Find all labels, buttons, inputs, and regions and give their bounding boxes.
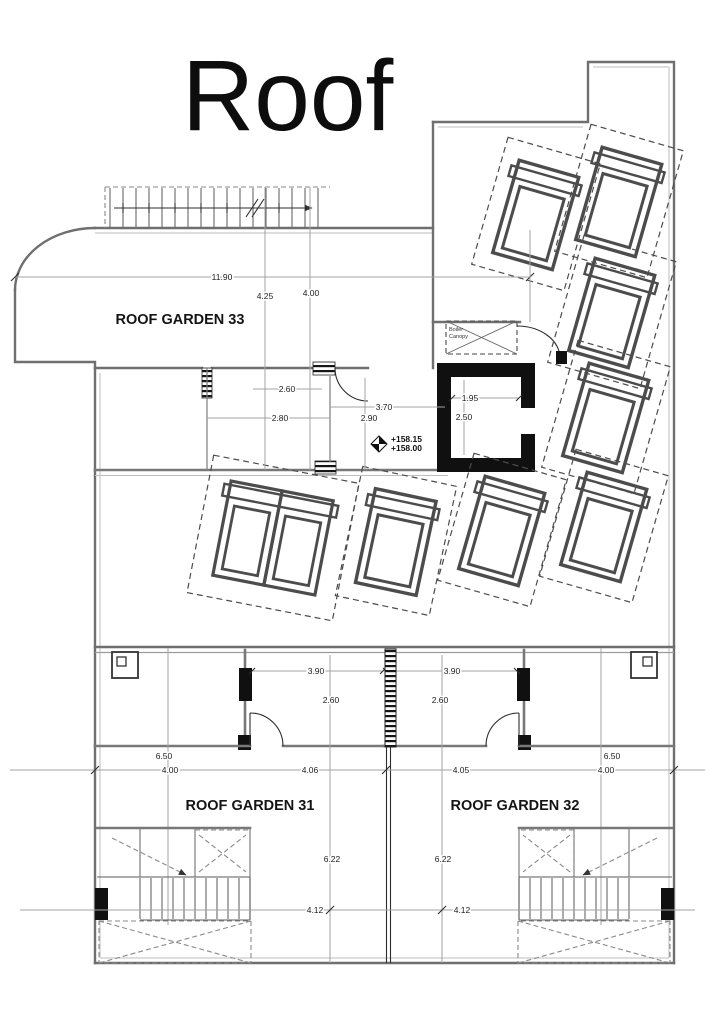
dim-406: 4.06 — [302, 765, 319, 775]
floor-plan-canvas: Roof Boiler Canopy — [0, 0, 709, 1024]
room-label-garden33: ROOF GARDEN 33 — [116, 312, 245, 328]
dim-vest-d-left: 2.60 — [323, 695, 340, 705]
dim-corr-370: 3.70 — [376, 402, 393, 412]
dim-room-260: 2.60 — [279, 384, 296, 394]
floor-plan-page: Roof Boiler Canopy — [0, 0, 709, 1024]
level-lower: +158.00 — [391, 443, 422, 453]
dim-lift-width: 1.95 — [462, 393, 479, 403]
dim-405: 4.05 — [453, 765, 470, 775]
dim-vest-d-right: 2.60 — [432, 695, 449, 705]
skylight-panel — [548, 235, 677, 388]
boiler-canopy: Boiler Canopy — [433, 321, 567, 364]
elevator-shaft: 1.95 2.50 — [437, 363, 535, 472]
dim-650-right: 6.50 — [604, 751, 621, 761]
dim-622-left: 6.22 — [324, 854, 341, 864]
dim-vest-w-right: 3.90 — [444, 666, 461, 676]
dim-622-right: 6.22 — [435, 854, 452, 864]
skylight-panel — [472, 137, 601, 290]
dim-top-width: 11.90 — [212, 272, 233, 282]
door-arc-garden33 — [335, 368, 368, 401]
dim-vest-w-left: 3.90 — [308, 666, 325, 676]
dim-412-right: 4.12 — [454, 905, 471, 915]
party-wall — [385, 649, 396, 963]
skylight-panels — [187, 124, 683, 621]
dim-corr-290: 2.90 — [361, 413, 378, 423]
room-label-garden31: ROOF GARDEN 31 — [186, 798, 315, 814]
dim-650-left: 6.50 — [156, 751, 173, 761]
boiler-label-2: Canopy — [449, 334, 468, 340]
dim-room-280: 2.80 — [272, 413, 289, 423]
level-marker: +158.15 +158.00 — [371, 434, 422, 453]
dim-400-left: 4.00 — [162, 765, 179, 775]
room-label-garden32: ROOF GARDEN 32 — [451, 798, 580, 814]
skylight-panel — [335, 466, 456, 615]
dim-h-left: 4.25 — [257, 291, 274, 301]
dim-400-right: 4.00 — [598, 765, 615, 775]
skylight-panel-double — [187, 455, 359, 621]
boiler-label-1: Boiler — [449, 327, 463, 333]
dim-lift-depth: 2.50 — [456, 412, 473, 422]
page-title: Roof — [182, 40, 393, 152]
dim-h-right: 4.00 — [303, 288, 320, 298]
top-stair — [105, 187, 330, 228]
skylight-panel — [438, 453, 567, 606]
dim-412-left: 4.12 — [307, 905, 324, 915]
